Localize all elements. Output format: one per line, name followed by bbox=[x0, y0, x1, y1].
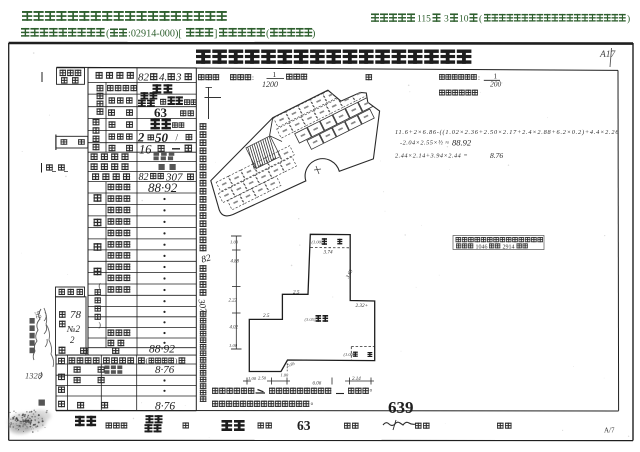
svg-text:-2.04×2.55×½ ≈: -2.04×2.55×½ ≈ bbox=[400, 140, 449, 147]
svg-text:2.32+: 2.32+ bbox=[356, 303, 369, 309]
svg-text:4.02: 4.02 bbox=[230, 326, 239, 331]
svg-text:16: 16 bbox=[139, 143, 152, 157]
svg-text:2914: 2914 bbox=[503, 244, 515, 250]
svg-text:82: 82 bbox=[139, 172, 149, 183]
svg-text:1.00: 1.00 bbox=[281, 373, 289, 378]
svg-text:82: 82 bbox=[138, 72, 150, 84]
svg-text:3: 3 bbox=[175, 72, 182, 84]
svg-text:88·92: 88·92 bbox=[148, 180, 178, 195]
svg-text::: : bbox=[252, 74, 254, 82]
svg-text:(3.05): (3.05) bbox=[305, 317, 316, 322]
svg-text:°: ° bbox=[311, 402, 314, 410]
svg-text:639: 639 bbox=[388, 398, 414, 417]
svg-text:63: 63 bbox=[297, 418, 311, 433]
svg-text:3.74: 3.74 bbox=[324, 249, 333, 256]
svg-text:1.00: 1.00 bbox=[229, 343, 238, 348]
svg-text:1.00: 1.00 bbox=[248, 376, 257, 381]
svg-text:A/7: A/7 bbox=[604, 427, 615, 435]
svg-text:2.5: 2.5 bbox=[293, 289, 300, 295]
svg-text:2.44×2.14+3.94×2.44 =: 2.44×2.14+3.94×2.44 = bbox=[395, 153, 468, 160]
svg-text:(: ( bbox=[266, 28, 270, 39]
svg-text:): ) bbox=[312, 28, 315, 39]
svg-text:A17: A17 bbox=[599, 50, 617, 60]
svg-text:8·76: 8·76 bbox=[155, 364, 175, 376]
svg-text:6.06: 6.06 bbox=[313, 382, 322, 387]
svg-text:2: 2 bbox=[70, 335, 75, 345]
svg-text:78: 78 bbox=[70, 309, 82, 321]
svg-text:°: ° bbox=[370, 388, 373, 396]
svg-text:№2: №2 bbox=[66, 324, 80, 334]
svg-text:]: ] bbox=[214, 28, 217, 39]
svg-text:1200: 1200 bbox=[262, 80, 278, 89]
svg-text::02914-000)[: :02914-000)[ bbox=[128, 28, 182, 39]
svg-text:200: 200 bbox=[490, 80, 502, 89]
svg-text:8·76: 8·76 bbox=[155, 401, 175, 413]
svg-text:10: 10 bbox=[459, 15, 469, 25]
svg-text:2.22: 2.22 bbox=[229, 299, 238, 304]
svg-text:4.88: 4.88 bbox=[231, 260, 240, 265]
svg-text:(1.00): (1.00) bbox=[312, 240, 323, 245]
svg-text:2.5: 2.5 bbox=[263, 313, 270, 319]
svg-text:2.14: 2.14 bbox=[352, 377, 361, 382]
svg-text:1.00: 1.00 bbox=[230, 240, 239, 245]
svg-text:1: 1 bbox=[273, 70, 277, 79]
svg-text:(: ( bbox=[106, 28, 110, 39]
svg-text:): ) bbox=[627, 14, 630, 25]
svg-text:8.76: 8.76 bbox=[490, 151, 503, 160]
svg-text:3: 3 bbox=[444, 15, 449, 25]
svg-text:63: 63 bbox=[154, 105, 168, 120]
svg-text:115: 115 bbox=[417, 15, 431, 25]
svg-text:1328: 1328 bbox=[25, 371, 43, 381]
svg-text:11.6+2×6.86-((1.02×2.36+2.50×2: 11.6+2×6.86-((1.02×2.36+2.50×2.17+2.4×2.… bbox=[395, 129, 619, 136]
svg-text:1046: 1046 bbox=[476, 244, 488, 250]
svg-text:(: ( bbox=[479, 14, 482, 25]
svg-text:88·92: 88·92 bbox=[149, 344, 175, 356]
svg-text:4.: 4. bbox=[159, 72, 167, 84]
svg-text::: : bbox=[478, 74, 480, 82]
svg-text:50: 50 bbox=[155, 130, 169, 145]
svg-text:88.92: 88.92 bbox=[452, 138, 472, 148]
